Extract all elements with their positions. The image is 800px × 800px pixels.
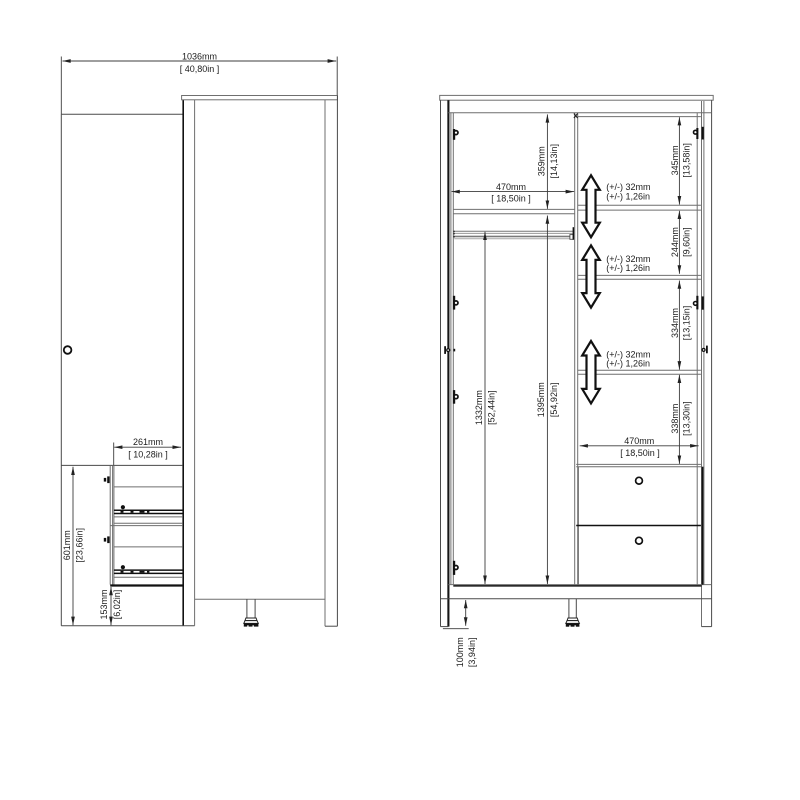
svg-text:1395mm: 1395mm [536, 382, 546, 417]
svg-text:(+/-) 1,26in: (+/-) 1,26in [606, 192, 650, 202]
svg-text:[52,44in]: [52,44in] [487, 390, 497, 425]
svg-text:[13,30in]: [13,30in] [681, 401, 691, 436]
svg-text:(+/-) 1,26in: (+/-) 1,26in [606, 358, 650, 368]
svg-text:(+/-) 1,26in: (+/-) 1,26in [606, 263, 650, 273]
svg-text:601mm: 601mm [62, 530, 72, 560]
svg-text:[3,94in]: [3,94in] [467, 638, 477, 668]
svg-text:[23,66in]: [23,66in] [75, 528, 85, 563]
svg-text:[14,13in]: [14,13in] [549, 144, 559, 179]
svg-text:[9,60in]: [9,60in] [681, 227, 691, 257]
svg-text:153mm: 153mm [99, 589, 109, 619]
svg-text:[ 18,50in ]: [ 18,50in ] [491, 194, 531, 204]
svg-text:(+/-) 32mm: (+/-) 32mm [606, 182, 650, 192]
svg-text:1036mm: 1036mm [182, 52, 217, 62]
svg-text:[6,02in]: [6,02in] [112, 590, 122, 620]
svg-text:1332mm: 1332mm [474, 390, 484, 425]
svg-text:470mm: 470mm [624, 436, 654, 446]
svg-text:470mm: 470mm [496, 182, 526, 192]
svg-text:359mm: 359mm [536, 146, 546, 176]
svg-text:[54,92in]: [54,92in] [549, 383, 559, 418]
svg-text:[13,58in]: [13,58in] [681, 143, 691, 178]
svg-text:[ 18,50in ]: [ 18,50in ] [620, 448, 660, 458]
svg-text:261mm: 261mm [133, 437, 163, 447]
svg-text:[13,15in]: [13,15in] [681, 306, 691, 341]
svg-text:345mm: 345mm [670, 145, 680, 175]
svg-text:[ 10,28in ]: [ 10,28in ] [128, 450, 168, 460]
svg-text:334mm: 334mm [670, 308, 680, 338]
svg-text:338mm: 338mm [670, 404, 680, 434]
svg-text:244mm: 244mm [670, 227, 680, 257]
svg-text:100mm: 100mm [455, 637, 465, 667]
svg-text:[ 40,80in ]: [ 40,80in ] [180, 64, 220, 74]
